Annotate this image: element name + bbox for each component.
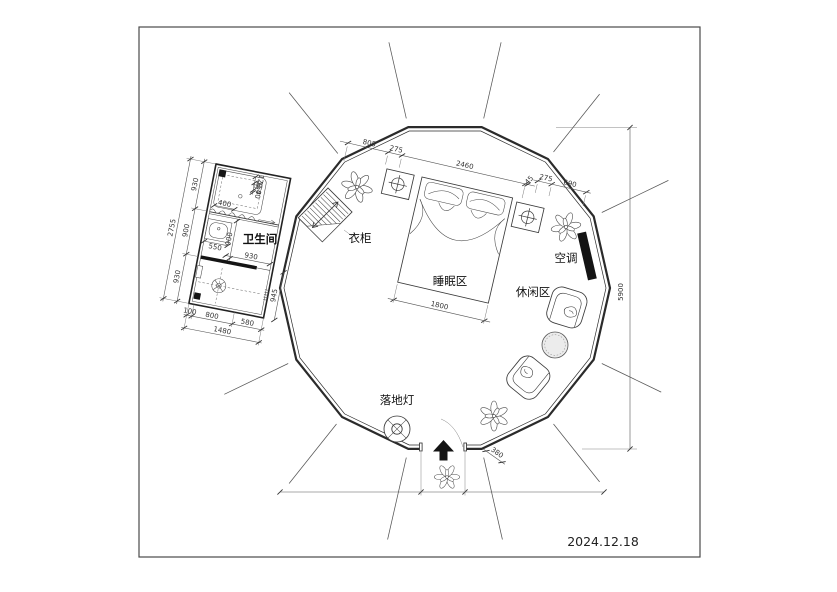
label-leisure-area: 休闲区 [516, 285, 551, 299]
floor-plan-page: 5900 805 275 2460 45 275 690 [0, 0, 837, 592]
label-floor-lamp: 落地灯 [380, 393, 415, 407]
floor-plan-drawing: 5900 805 275 2460 45 275 690 [0, 0, 837, 592]
drawing-date: 2024.12.18 [567, 534, 639, 549]
door-jamb-left [420, 443, 423, 451]
dim-shower-side-c: 40 [253, 189, 263, 199]
dim-room-height-text: 5900 [617, 283, 625, 301]
label-wardrobe: 衣柜 [349, 231, 372, 245]
floor-lamp [384, 416, 410, 442]
label-sleeping-area: 睡眠区 [433, 274, 468, 288]
label-air-conditioner: 空调 [555, 251, 578, 265]
door-jamb-right [464, 443, 467, 451]
label-bathroom: 卫生间 [243, 232, 278, 246]
round-side-table [542, 332, 568, 358]
